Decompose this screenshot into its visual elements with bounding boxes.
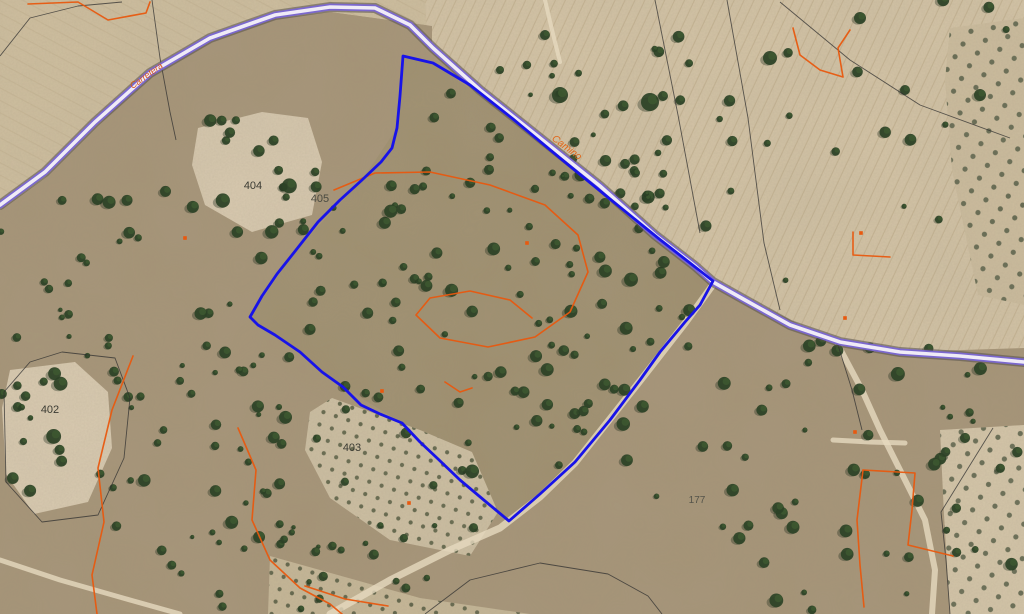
tree-highlight xyxy=(507,265,510,268)
tree-highlight xyxy=(190,390,194,394)
tree-highlight xyxy=(422,183,426,187)
tree-highlight xyxy=(942,405,945,408)
tree-highlight xyxy=(633,155,639,161)
tree-highlight xyxy=(844,526,851,533)
tree-highlight xyxy=(53,368,60,375)
tree-highlight xyxy=(161,546,166,551)
tree-highlight xyxy=(967,372,970,375)
tree-highlight xyxy=(99,470,104,475)
tree-highlight xyxy=(974,547,978,551)
tree-highlight xyxy=(544,31,550,37)
tree-highlight xyxy=(86,260,90,264)
tree-highlight xyxy=(163,427,167,431)
tree-highlight xyxy=(730,188,734,192)
tree-highlight xyxy=(59,378,67,386)
tree-highlight xyxy=(229,302,232,305)
tree-highlight xyxy=(302,225,308,231)
tree-highlight xyxy=(285,194,289,198)
tree-highlight xyxy=(949,414,952,417)
tree-highlight xyxy=(319,287,324,292)
tree-highlight xyxy=(420,385,425,390)
tree-highlight xyxy=(444,332,448,336)
tree-highlight xyxy=(272,433,278,439)
tree-highlight xyxy=(278,479,284,485)
tree-highlight xyxy=(738,533,745,540)
tree-highlight xyxy=(551,73,554,76)
tree-highlight xyxy=(181,571,184,574)
tree-highlight xyxy=(427,273,432,278)
tree-highlight xyxy=(558,88,567,97)
tree-highlight xyxy=(587,334,590,337)
tree-highlight xyxy=(624,160,629,165)
tree-highlight xyxy=(656,494,659,497)
tree-highlight xyxy=(426,575,430,579)
orange-marker-icon xyxy=(407,501,411,505)
tree-highlight xyxy=(397,346,403,352)
tree-highlight xyxy=(528,224,532,228)
tree-highlight xyxy=(342,228,345,231)
tree-highlight xyxy=(519,291,523,295)
tree-highlight xyxy=(0,229,4,233)
tree-highlight xyxy=(499,67,503,71)
tree-highlight xyxy=(117,377,121,381)
tree-highlight xyxy=(903,204,906,207)
tree-highlight xyxy=(657,150,661,154)
tree-highlight xyxy=(16,382,21,387)
tree-highlight xyxy=(61,315,64,318)
tree-highlight xyxy=(278,219,283,224)
tree-highlight xyxy=(564,173,569,178)
tree-highlight xyxy=(535,351,542,358)
tree-highlight xyxy=(944,448,949,453)
parcel-label-402: 402 xyxy=(41,404,59,416)
tree-highlight xyxy=(287,180,295,188)
tree-highlight xyxy=(331,542,336,547)
tree-highlight xyxy=(23,438,27,442)
tree-highlight xyxy=(583,429,587,433)
parcel-label-403: 403 xyxy=(343,442,361,454)
tree-highlight xyxy=(312,250,315,253)
tree-highlight xyxy=(562,175,564,177)
tree-highlight xyxy=(316,435,320,439)
tree-highlight xyxy=(622,418,629,425)
tree-highlight xyxy=(603,380,609,386)
tree-highlight xyxy=(435,248,441,254)
tree-highlight xyxy=(972,419,975,422)
tree-highlight xyxy=(787,49,792,54)
tree-highlight xyxy=(571,272,575,276)
tree-highlight xyxy=(835,148,840,153)
tree-highlight xyxy=(705,221,711,227)
tree-highlight xyxy=(278,404,281,407)
tree-highlight xyxy=(908,553,913,558)
tree-highlight xyxy=(604,156,610,162)
tree-highlight xyxy=(279,521,283,525)
tree-highlight xyxy=(662,92,668,98)
tree-highlight xyxy=(677,32,683,38)
tree-highlight xyxy=(731,485,738,492)
tree-highlight xyxy=(687,343,692,348)
tree-highlight xyxy=(665,205,668,208)
tree-highlight xyxy=(432,482,437,487)
tree-highlight xyxy=(549,317,553,321)
tree-highlight xyxy=(253,363,256,366)
tree-highlight xyxy=(288,353,294,359)
tree-highlight xyxy=(650,338,654,342)
tree-highlight xyxy=(775,595,783,603)
tree-highlight xyxy=(789,113,793,117)
tree-highlight xyxy=(846,549,853,556)
tree-highlight xyxy=(182,363,185,366)
tree-highlight xyxy=(235,117,239,121)
tree-highlight xyxy=(587,400,592,405)
tree-highlight xyxy=(390,181,396,187)
tree-highlight xyxy=(623,385,630,392)
tree-highlight xyxy=(261,353,264,356)
tree-highlight xyxy=(262,489,265,492)
tree-highlight xyxy=(906,592,909,595)
tree-highlight xyxy=(552,170,556,174)
tree-highlight xyxy=(164,187,170,193)
tree-highlight xyxy=(662,170,666,174)
tree-highlight xyxy=(641,401,648,408)
tree-highlight xyxy=(551,342,555,346)
tree-highlight xyxy=(498,134,503,139)
tree-highlight xyxy=(191,202,198,209)
tree-highlight xyxy=(1010,559,1017,566)
tree-highlight xyxy=(119,239,122,242)
tree-highlight xyxy=(69,334,72,337)
tree-highlight xyxy=(434,523,437,526)
tree-highlight xyxy=(61,197,66,202)
tree-highlight xyxy=(534,185,538,189)
tree-highlight xyxy=(452,194,455,197)
tree-highlight xyxy=(570,193,573,196)
tree-highlight xyxy=(808,341,815,348)
tree-highlight xyxy=(722,524,726,528)
tree-highlight xyxy=(933,459,940,466)
tree-highlight xyxy=(260,253,267,260)
tree-highlight xyxy=(24,392,29,397)
tree-highlight xyxy=(60,457,66,463)
tree-highlight xyxy=(659,268,665,274)
tree-highlight xyxy=(909,135,915,141)
tree-highlight xyxy=(365,541,368,544)
tree-highlight xyxy=(467,440,471,444)
tree-highlight xyxy=(634,203,638,207)
tree-highlight xyxy=(212,530,215,533)
tree-highlight xyxy=(499,367,505,373)
tree-highlight xyxy=(221,603,226,608)
tree-highlight xyxy=(403,535,408,540)
tree-highlight xyxy=(400,205,405,210)
tree-highlight xyxy=(215,370,218,373)
tree-highlight xyxy=(554,240,560,246)
tree-highlight xyxy=(604,266,611,273)
tree-highlight xyxy=(1005,27,1009,31)
tree-highlight xyxy=(206,342,211,347)
tree-highlight xyxy=(215,420,221,426)
tree-highlight xyxy=(702,442,708,448)
tree-highlight xyxy=(220,116,225,121)
tree-highlight xyxy=(366,308,372,314)
track-right-branch xyxy=(833,440,905,443)
tree-highlight xyxy=(315,548,320,553)
tree-highlight xyxy=(379,523,383,527)
tree-highlight xyxy=(394,203,397,206)
tree-highlight xyxy=(509,208,512,211)
tree-highlight xyxy=(486,208,490,212)
tree-highlight xyxy=(593,133,596,136)
tree-highlight xyxy=(137,235,141,239)
tree-highlight xyxy=(389,206,396,213)
tree-highlight xyxy=(601,300,607,306)
tree-highlight xyxy=(886,551,889,554)
tree-highlight xyxy=(803,590,806,593)
tree-highlight xyxy=(112,485,116,489)
tree-highlight xyxy=(474,374,477,377)
tree-highlight xyxy=(916,496,923,503)
tree-highlight xyxy=(884,127,890,133)
tree-highlight xyxy=(140,393,144,397)
tree-highlight xyxy=(573,138,578,143)
tree-highlight xyxy=(613,385,618,390)
tree-highlight xyxy=(230,517,237,524)
tree-highlight xyxy=(128,228,134,234)
tree-highlight xyxy=(569,262,573,266)
tree-highlight xyxy=(471,466,478,473)
tree-highlight xyxy=(312,298,317,303)
tree-highlight xyxy=(856,67,862,73)
tree-highlight xyxy=(968,409,973,414)
tree-highlight xyxy=(938,216,942,220)
tree-highlight xyxy=(300,606,304,610)
tree-highlight xyxy=(646,191,649,194)
tree-highlight xyxy=(723,378,730,385)
tree-highlight xyxy=(245,501,248,504)
tree-highlight xyxy=(489,154,493,158)
tree-highlight xyxy=(558,462,562,466)
tree-highlight xyxy=(272,136,278,142)
tree-highlight xyxy=(318,253,322,257)
tree-highlight xyxy=(283,536,287,540)
tree-highlight xyxy=(679,96,684,101)
tree-highlight xyxy=(236,227,242,233)
tree-highlight xyxy=(242,367,247,372)
tree-highlight xyxy=(763,558,769,564)
tree-highlight xyxy=(218,590,222,594)
tree-highlight xyxy=(43,378,48,383)
tree-highlight xyxy=(258,412,261,415)
tree-highlight xyxy=(658,306,662,310)
tree-highlight xyxy=(619,189,625,195)
tree-highlight xyxy=(115,522,120,527)
tree-highlight xyxy=(1016,448,1022,454)
tree-highlight xyxy=(107,343,111,347)
tree-highlight xyxy=(314,168,319,173)
tree-highlight xyxy=(766,140,770,144)
tree-highlight xyxy=(588,194,593,199)
tree-highlight xyxy=(377,393,382,398)
tree-highlight xyxy=(315,182,321,188)
tree-highlight xyxy=(405,584,410,589)
tree-highlight xyxy=(574,351,579,356)
tree-highlight xyxy=(224,348,230,354)
orange-marker-icon xyxy=(853,430,857,434)
tree-highlight xyxy=(143,475,150,482)
tree-highlight xyxy=(744,454,748,458)
tree-highlight xyxy=(768,385,772,389)
tree-highlight xyxy=(785,380,790,385)
tree-highlight xyxy=(658,47,664,53)
tree-highlight xyxy=(214,486,220,492)
tree-highlight xyxy=(373,550,378,555)
tree-highlight xyxy=(52,430,60,438)
tree-highlight xyxy=(108,335,112,339)
tree-highlight xyxy=(208,309,213,314)
tree-highlight xyxy=(562,346,568,352)
tree-highlight xyxy=(492,244,499,251)
tree-highlight xyxy=(604,110,609,115)
tree-highlight xyxy=(96,194,102,200)
map-canvas[interactable]: 404405402403177CaminoCarretera xyxy=(0,0,1024,614)
tree-highlight xyxy=(488,166,493,171)
tree-highlight xyxy=(662,257,668,263)
tree-highlight xyxy=(807,359,811,363)
tree-highlight xyxy=(322,572,327,577)
tree-highlight xyxy=(651,248,655,252)
parcel-label-404: 404 xyxy=(244,180,262,192)
tree-highlight xyxy=(365,390,370,395)
parcel-label-405: 405 xyxy=(311,193,329,205)
tree-highlight xyxy=(257,146,263,152)
tree-highlight xyxy=(535,416,541,422)
tree-highlight xyxy=(218,540,221,543)
tree-highlight xyxy=(471,307,477,313)
tree-highlight xyxy=(58,446,64,452)
tree-highlight xyxy=(21,405,25,409)
tree-highlight xyxy=(648,95,658,105)
tree-highlight xyxy=(192,535,194,537)
tree-highlight xyxy=(598,253,604,259)
orange-marker-icon xyxy=(380,389,384,393)
tree-highlight xyxy=(625,455,631,461)
tree-highlight xyxy=(413,185,419,191)
tree-highlight xyxy=(179,378,183,382)
tree-highlight xyxy=(403,264,407,268)
tree-highlight xyxy=(344,478,348,482)
tree-highlight xyxy=(29,486,36,493)
tree-highlight xyxy=(157,440,161,444)
tree-highlight xyxy=(622,101,628,107)
orange-marker-icon xyxy=(183,236,187,240)
tree-highlight xyxy=(904,86,910,92)
tree-highlight xyxy=(538,320,542,324)
tree-highlight xyxy=(450,89,455,94)
tree-highlight xyxy=(214,442,219,447)
tree-highlight xyxy=(425,281,431,287)
tree-highlight xyxy=(67,280,71,284)
tree-highlight xyxy=(526,61,531,66)
tree-highlight xyxy=(80,254,85,259)
tree-highlight xyxy=(490,123,495,128)
tree-highlight xyxy=(240,447,243,450)
tree-highlight xyxy=(395,578,399,582)
tree-highlight xyxy=(546,364,553,371)
tree-highlight xyxy=(270,226,277,233)
tree-highlight xyxy=(760,406,766,412)
tree-highlight xyxy=(309,325,315,331)
tree-highlight xyxy=(340,547,344,551)
tree-highlight xyxy=(171,561,176,566)
tree-highlight xyxy=(688,60,692,64)
tree-highlight xyxy=(11,473,17,479)
tree-highlight xyxy=(277,167,282,172)
tree-highlight xyxy=(514,387,519,392)
tree-highlight xyxy=(534,258,539,263)
tree-highlight xyxy=(551,424,554,427)
tree-highlight xyxy=(293,525,295,527)
tree-highlight xyxy=(516,425,519,428)
tree-highlight xyxy=(107,197,114,204)
tree-highlight xyxy=(999,464,1004,469)
tree-highlight xyxy=(284,412,291,419)
tree-highlight xyxy=(266,489,271,494)
tree-highlight xyxy=(209,115,216,122)
tree-highlight xyxy=(791,522,798,529)
tree-highlight xyxy=(576,426,580,430)
tree-highlight xyxy=(244,546,248,550)
tree-highlight xyxy=(126,196,132,202)
map-viewport[interactable]: 404405402403177CaminoCarretera xyxy=(0,0,1024,614)
tree-highlight xyxy=(632,346,635,349)
tree-highlight xyxy=(804,428,807,431)
tree-highlight xyxy=(16,334,21,339)
tree-highlight xyxy=(280,440,285,445)
tree-highlight xyxy=(666,136,672,142)
tree-highlight xyxy=(896,368,904,376)
tree-highlight xyxy=(582,407,588,413)
tree-highlight xyxy=(229,128,235,134)
tree-highlight xyxy=(199,308,206,315)
tree-highlight xyxy=(768,52,776,60)
tree-highlight xyxy=(946,527,950,531)
tree-highlight xyxy=(553,60,557,64)
tree-highlight xyxy=(131,406,134,409)
tree-highlight xyxy=(546,400,552,406)
tree-highlight xyxy=(728,96,734,102)
tree-highlight xyxy=(308,579,311,582)
orange-marker-icon xyxy=(525,241,529,245)
orange-marker-icon xyxy=(859,231,863,235)
tree-highlight xyxy=(530,93,533,96)
tree-highlight xyxy=(256,401,263,408)
tree-highlight xyxy=(955,504,960,509)
tree-highlight xyxy=(731,137,737,143)
tree-highlight xyxy=(457,399,463,405)
tree-highlight xyxy=(318,545,320,547)
tree-highlight xyxy=(747,521,753,527)
tree-highlight xyxy=(450,285,457,292)
tree-highlight xyxy=(345,406,350,411)
tree-highlight xyxy=(979,363,986,370)
tree-highlight xyxy=(852,465,859,472)
tree-highlight xyxy=(726,442,731,447)
tree-highlight xyxy=(777,503,783,509)
tree-highlight xyxy=(719,116,722,119)
tree-highlight xyxy=(654,46,657,49)
tree-highlight xyxy=(302,219,305,222)
